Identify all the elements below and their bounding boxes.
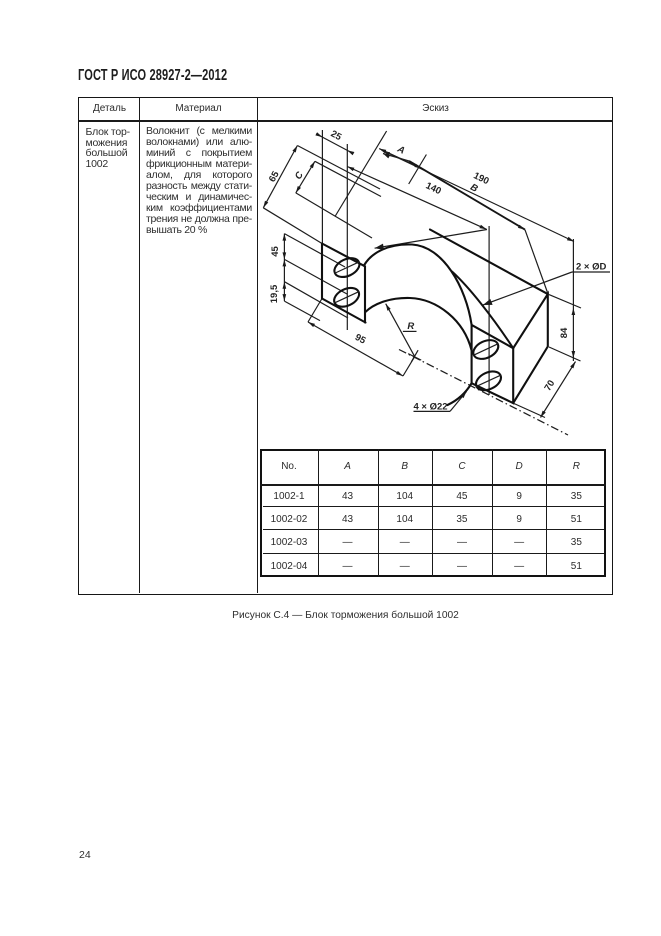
svg-text:70: 70	[542, 378, 557, 393]
svg-text:45: 45	[270, 246, 281, 257]
svg-text:R: R	[407, 321, 414, 332]
svg-text:2 × ØD: 2 × ØD	[576, 262, 606, 273]
svg-text:84: 84	[559, 327, 570, 338]
svg-text:140: 140	[424, 180, 443, 197]
svg-text:A: A	[395, 143, 407, 156]
svg-text:95: 95	[353, 332, 368, 347]
svg-text:19,5: 19,5	[269, 284, 280, 303]
svg-text:4 × Ø22: 4 × Ø22	[414, 402, 448, 413]
svg-text:B: B	[468, 182, 479, 195]
svg-text:65: 65	[267, 169, 282, 184]
